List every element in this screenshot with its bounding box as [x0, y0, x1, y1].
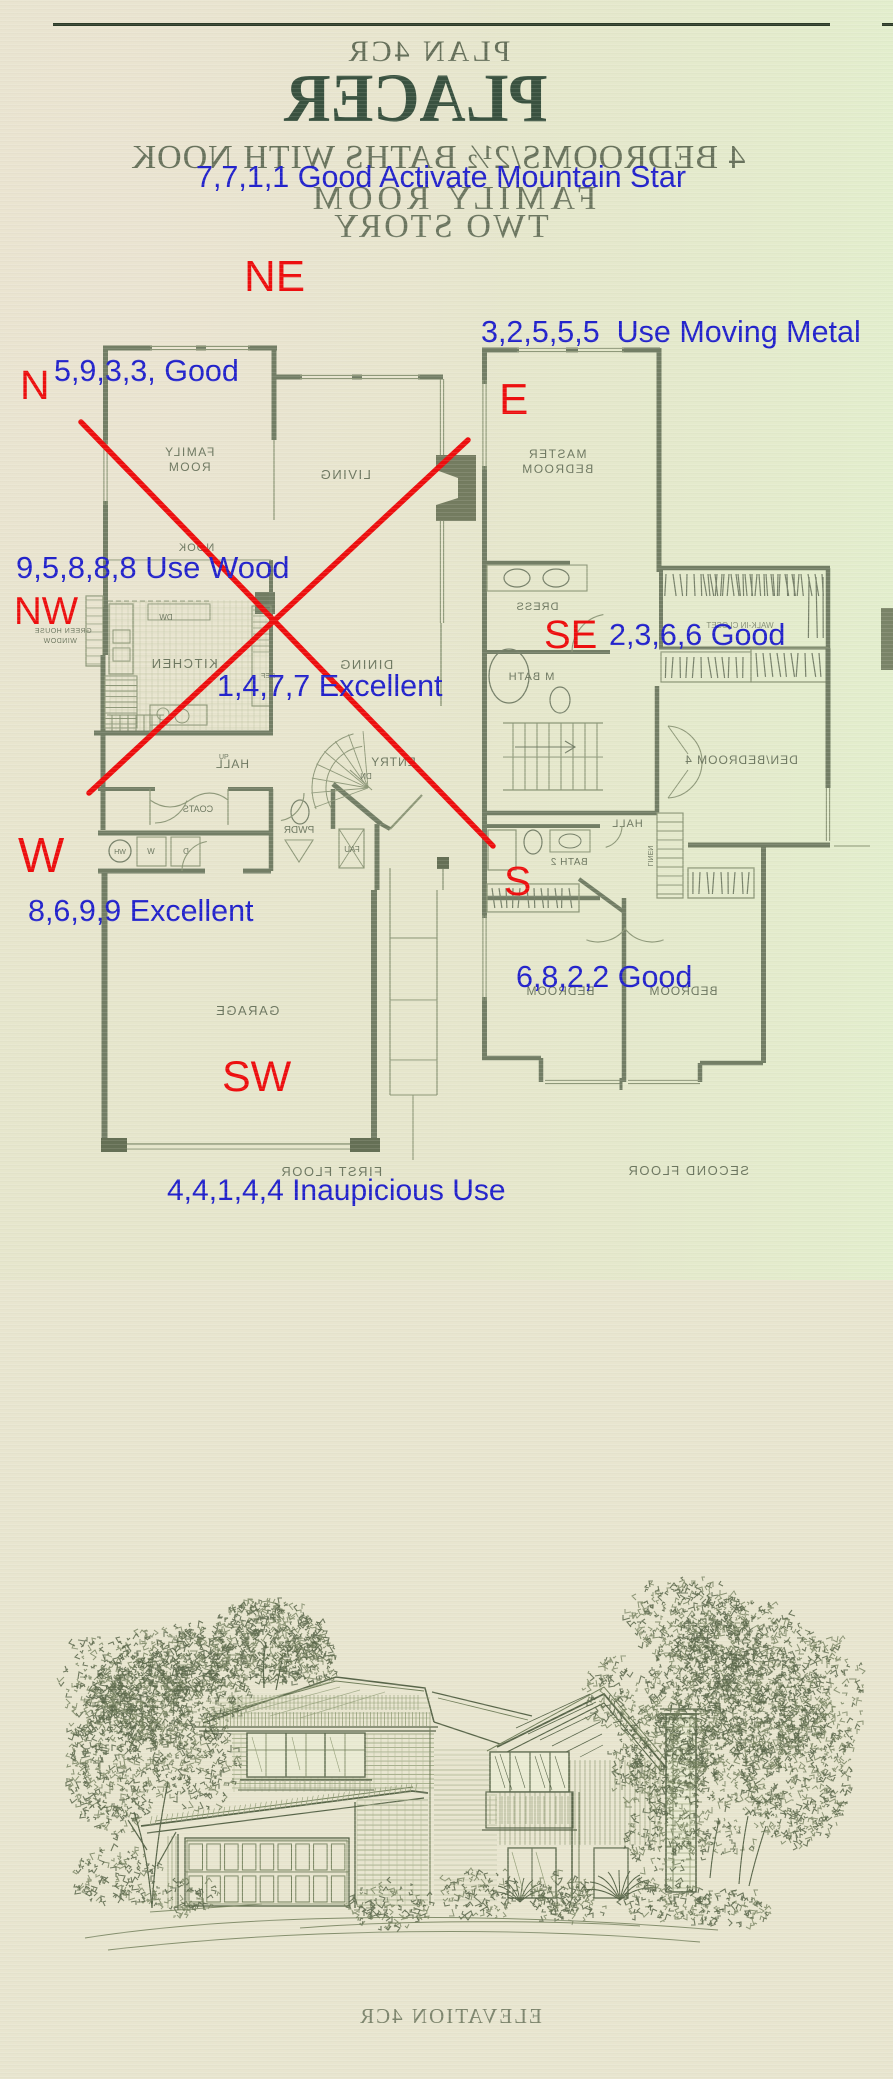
- svg-text:1,4,7,7 Excellent: 1,4,7,7 Excellent: [217, 669, 443, 703]
- svg-text:HALL: HALL: [611, 818, 643, 830]
- svg-text:LINEN: LINEN: [646, 846, 653, 867]
- svg-text:DN: DN: [360, 772, 372, 781]
- svg-text:NE: NE: [244, 252, 305, 301]
- svg-text:W: W: [147, 847, 155, 856]
- svg-text:WH: WH: [114, 849, 126, 856]
- svg-text:E: E: [499, 375, 528, 424]
- svg-text:W: W: [18, 829, 65, 883]
- svg-text:S: S: [504, 858, 531, 904]
- svg-text:SE: SE: [544, 613, 597, 657]
- svg-text:LIVING: LIVING: [319, 467, 371, 482]
- svg-text:KITCHEN: KITCHEN: [150, 656, 218, 671]
- svg-text:DRESS: DRESS: [516, 601, 559, 613]
- svg-text:DW: DW: [159, 613, 173, 622]
- svg-text:8,6,9,9 Excellent: 8,6,9,9 Excellent: [28, 894, 254, 928]
- svg-text:D: D: [183, 847, 189, 856]
- svg-text:ROOM: ROOM: [167, 460, 210, 474]
- svg-text:5,9,3,3, Good: 5,9,3,3, Good: [54, 354, 239, 388]
- svg-text:SECOND FLOOR: SECOND FLOOR: [627, 1163, 749, 1178]
- svg-text:UP: UP: [219, 754, 229, 761]
- svg-text:M BATH: M BATH: [508, 671, 555, 683]
- svg-text:MASTER: MASTER: [527, 447, 586, 461]
- svg-text:PWDR: PWDR: [284, 825, 315, 836]
- svg-text:GARAGE: GARAGE: [215, 1003, 280, 1018]
- svg-text:3,2,5,5,5 Use Moving Metal: 3,2,5,5,5 Use Moving Metal: [481, 315, 861, 349]
- svg-text:2,3,6,6 Good: 2,3,6,6 Good: [609, 618, 785, 652]
- svg-text:6,8,2,2 Good: 6,8,2,2 Good: [516, 960, 692, 994]
- svg-text:WINDOW: WINDOW: [43, 638, 77, 645]
- svg-text:COATS: COATS: [183, 804, 213, 814]
- svg-text:SW: SW: [222, 1053, 292, 1101]
- svg-text:ELEVATION 4CR: ELEVATION 4CR: [358, 2004, 542, 2028]
- svg-text:9,5,8,8,8 Use Wood: 9,5,8,8,8 Use Wood: [16, 550, 289, 585]
- svg-text:PLACER: PLACER: [284, 61, 548, 137]
- svg-text:TWO STORY: TWO STORY: [331, 208, 548, 245]
- svg-text:FAU: FAU: [344, 845, 360, 854]
- svg-text:FAMILY: FAMILY: [164, 445, 215, 459]
- svg-text:NW: NW: [14, 590, 79, 633]
- svg-text:BATH 2: BATH 2: [550, 857, 587, 868]
- svg-text:DEN/BEDROOM 4: DEN/BEDROOM 4: [684, 753, 798, 767]
- svg-text:N: N: [20, 362, 50, 408]
- svg-text:BEDROOM: BEDROOM: [521, 462, 594, 476]
- svg-text:4,4,1,4,4 Inaupicious Use: 4,4,1,4,4 Inaupicious Use: [167, 1174, 506, 1207]
- svg-text:7,7,1,1 Good Activate Mountain: 7,7,1,1 Good Activate Mountain Star: [196, 160, 686, 194]
